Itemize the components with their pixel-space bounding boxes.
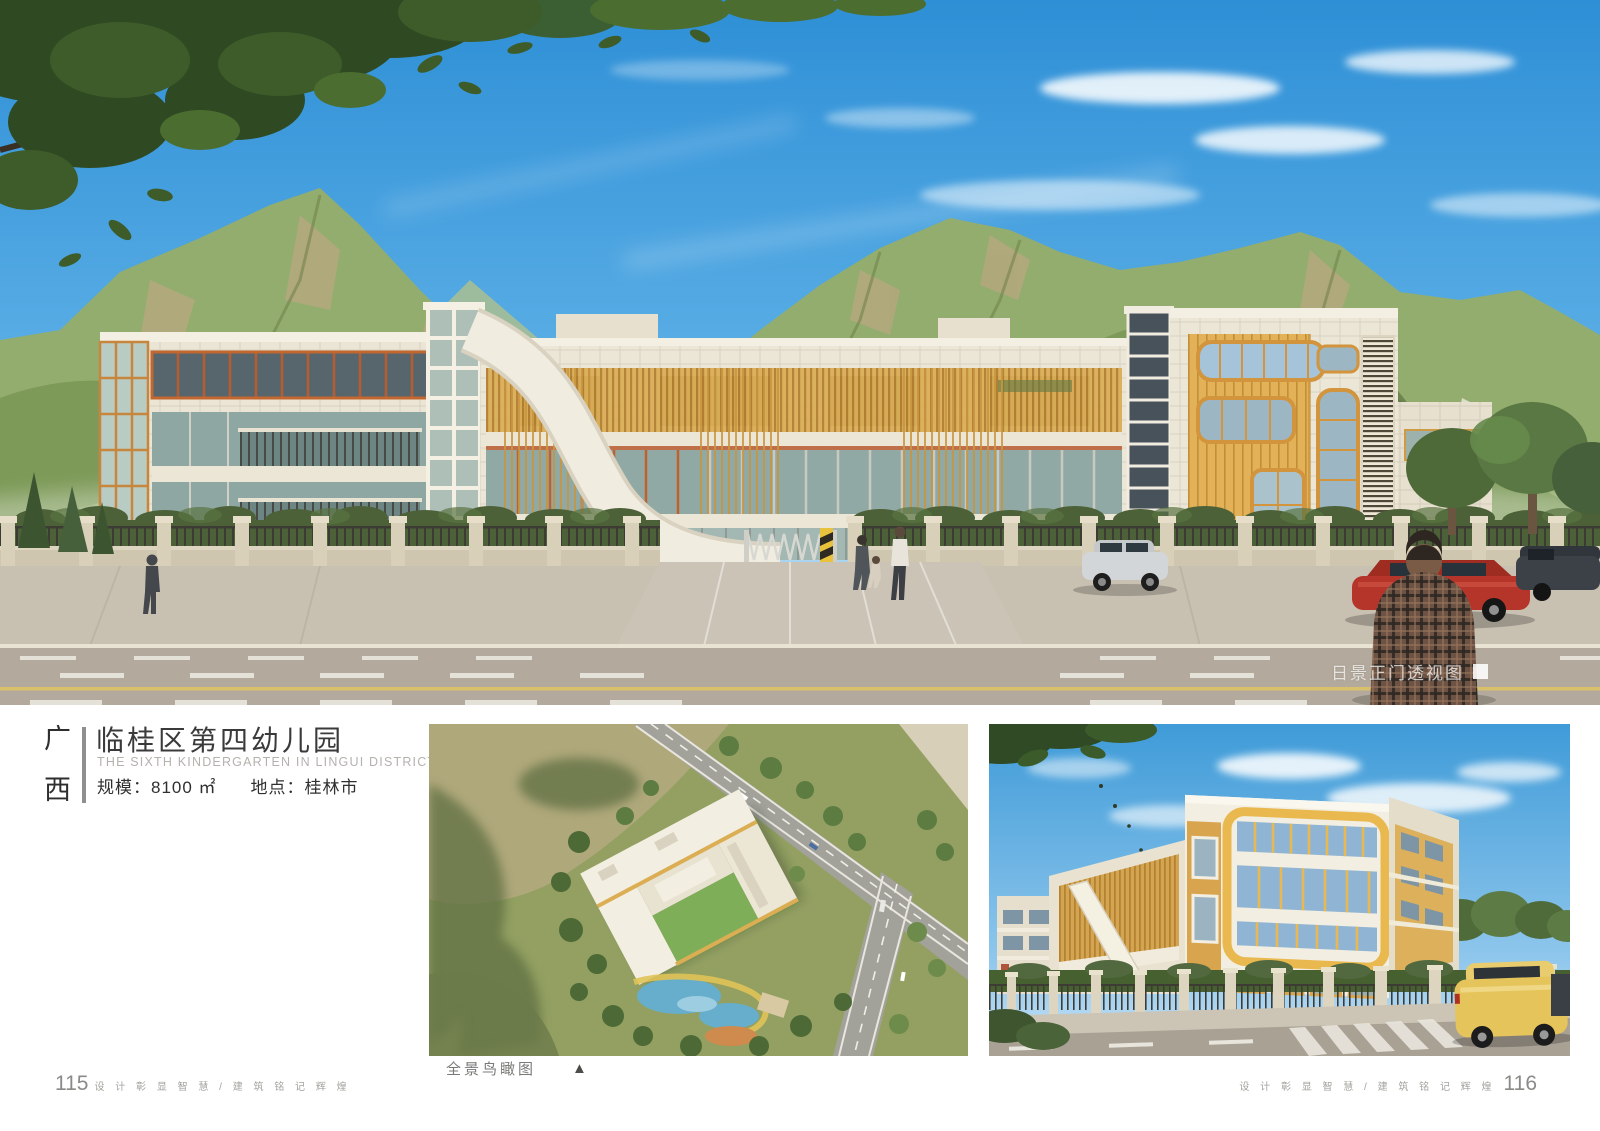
dark-car (1551, 974, 1570, 1016)
aerial-view-thumbnail (429, 724, 968, 1056)
title-divider (82, 727, 86, 803)
project-info: 规模：8100 ㎡ 地点：桂林市 (97, 773, 359, 798)
footer-right: 设 计 彰 显 智 慧 / 建 筑 铭 记 辉 煌 116 (1239, 1072, 1537, 1096)
project-location: 地点：桂林市 (251, 773, 359, 798)
hero-rendering (0, 0, 1600, 705)
aerial-caption-text: 全景鸟瞰图 (446, 1058, 536, 1079)
region-char-2: 西 (44, 777, 74, 804)
side-view-thumbnail (989, 724, 1570, 1056)
aerial-caption: 全景鸟瞰图 ▲ (446, 1058, 587, 1079)
triangle-marker-icon: ▲ (572, 1060, 587, 1077)
white-square-icon (1473, 664, 1488, 679)
page-number-right: 116 (1504, 1072, 1537, 1096)
hero-caption-text: 日景正门透视图 (1331, 659, 1464, 684)
footer-slogan-left: 设 计 彰 显 智 慧 / 建 筑 铭 记 辉 煌 (94, 1078, 350, 1093)
region-char-1: 广 (44, 726, 74, 753)
project-subtitle-en: THE SIXTH KINDERGARTEN IN LINGUI DISTRIC… (97, 755, 436, 769)
page-number-left: 115 (55, 1072, 88, 1096)
project-scale: 规模：8100 ㎡ (97, 773, 217, 798)
title-block: 广 西 临桂区第四幼儿园 THE SIXTH KINDERGARTEN IN L… (0, 705, 430, 825)
hero-caption: 日景正门透视图 (1331, 659, 1488, 684)
footer-slogan-right: 设 计 彰 显 智 慧 / 建 筑 铭 记 辉 煌 (1239, 1078, 1495, 1093)
region-label: 广 西 (44, 726, 74, 804)
project-title: 临桂区第四幼儿园 (96, 719, 344, 759)
portfolio-page: 日景正门透视图 广 西 临桂区第四幼儿园 THE SIXTH KINDERGAR… (0, 0, 1600, 1131)
footer-left: 115 设 计 彰 显 智 慧 / 建 筑 铭 记 辉 煌 (55, 1072, 351, 1096)
